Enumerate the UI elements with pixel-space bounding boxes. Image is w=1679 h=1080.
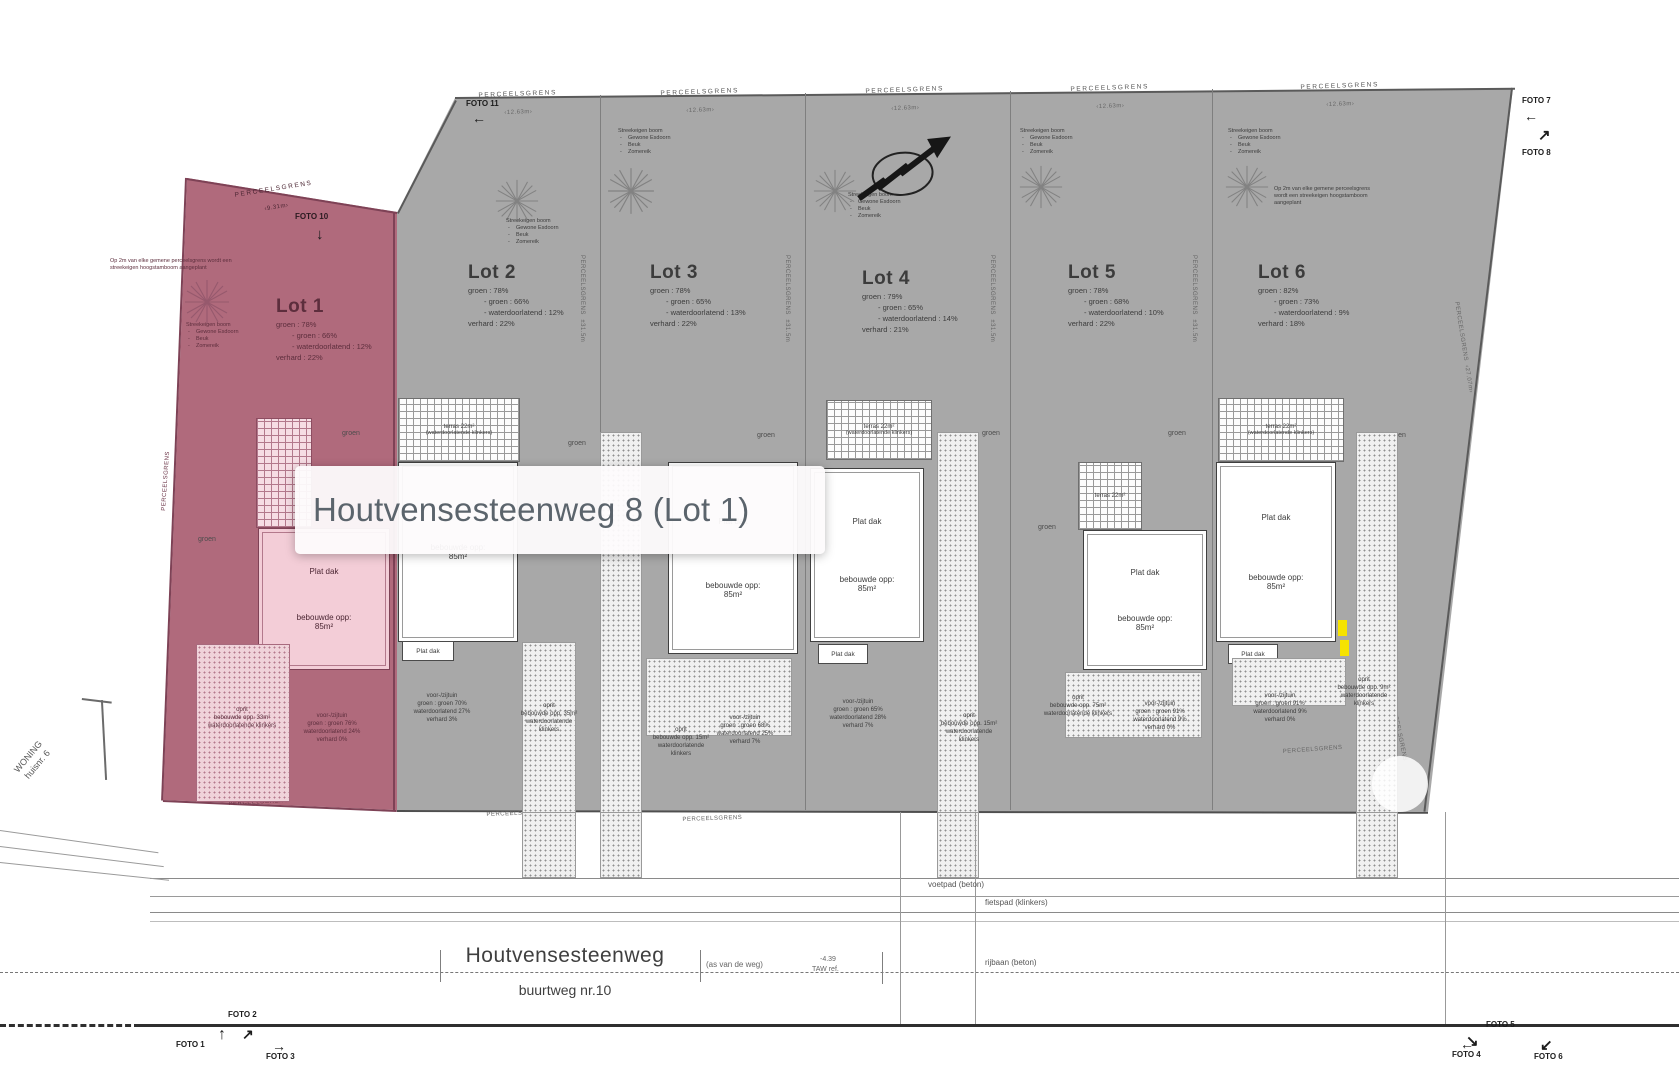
boundary-label-text: PERCEELSGRENS: [1300, 81, 1379, 91]
lot5-front-annotation: voor-/zijtuin groen : groen 91% waterdoo…: [1118, 700, 1202, 732]
stat-line: groen : 78%: [1068, 286, 1218, 297]
stat-line: - groen : 66%: [276, 331, 426, 342]
tree-legend-title: Streekeigen boom: [1020, 128, 1065, 134]
lot6-title: Lot 6: [1258, 262, 1408, 284]
roof-label: Plat dak: [1262, 513, 1291, 522]
annot-line: voor-/zijtuin: [286, 712, 378, 720]
green-label: groen: [568, 440, 586, 447]
stat-line: groen : 79%: [862, 292, 1012, 303]
annot-line: waterdoorlatende klinkers: [1042, 710, 1114, 718]
stat-line: verhard : 22%: [1068, 319, 1218, 330]
lot3-title: Lot 3: [650, 262, 800, 284]
annot-line: waterdoorlatende klinkers: [1330, 692, 1398, 708]
stat-line: groen : 78%: [468, 286, 618, 297]
road-section-fietspad: fietspad (klinkers): [985, 898, 1048, 907]
stat-line: groen : 78%: [650, 286, 800, 297]
lot2-info: Lot 2 groen : 78% - groen : 66% - waterd…: [468, 262, 618, 330]
roof-label: Plat dak: [1131, 568, 1160, 577]
down-left-arrow-icon: ↙: [1540, 1036, 1553, 1054]
lot3-info: Lot 3 groen : 78% - groen : 65% - waterd…: [650, 262, 800, 330]
tree-legend-item: Gewone Esdoorn: [186, 329, 278, 336]
neighbor-boundary-h: [82, 698, 112, 703]
stat-line: - groen : 65%: [650, 297, 800, 308]
annot-line: bebouwde opp. 33m²: [202, 714, 282, 722]
annot-line: groen : groen 76%: [286, 720, 378, 728]
lot2-oprit-annotation: oprit bebouwde opp. 35m² waterdoorlatend…: [520, 702, 578, 734]
annot-line: groen : groen 91%: [1118, 708, 1202, 716]
stat-line: - groen : 65%: [862, 303, 1012, 314]
neighbor-boundary-v: [101, 700, 107, 780]
annot-line: verhard 3%: [398, 716, 486, 724]
tree-legend-item: Gewone Esdoorn: [618, 135, 710, 142]
tree-legend-item: Beuk: [506, 232, 598, 239]
up-right-arrow-icon: ↗: [242, 1026, 254, 1043]
lot4-stats: groen : 79% - groen : 65% - waterdoorlat…: [862, 292, 1012, 336]
boundary-measure: ‹12.63m›: [686, 107, 714, 114]
annot-line: bebouwde opp. 15m²: [938, 720, 1000, 728]
boundary-measure: ‹12.63m›: [504, 109, 532, 116]
lot5-terrace: terras 22m²: [1078, 462, 1142, 530]
annot-line: waterdoorlatende klinkers: [938, 728, 1000, 744]
road-section-voetpad: voetpad (beton): [928, 880, 984, 889]
tree-legend-title: Streekeigen boom: [1228, 128, 1273, 134]
lot1-info: Lot 1 groen : 78% - groen : 66% - waterd…: [276, 296, 426, 364]
boundary-measure: ‹12.63m›: [1326, 101, 1354, 108]
lot6-terrace: terras 22m² (waterdoorlatende klinkers): [1218, 398, 1344, 462]
boundary-label-text: PERCEELSGRENS: [234, 180, 313, 199]
lot5-stats: groen : 78% - groen : 68% - waterdoorlat…: [1068, 286, 1218, 330]
stat-line: - waterdoorlatend : 13%: [650, 308, 800, 319]
north-arrow-icon: [846, 119, 974, 216]
terrace-label: terras 22m²: [1095, 493, 1126, 499]
neighbor-house-label: WONING huisnr. 6: [12, 739, 54, 783]
planting-note-lot6: Op 2m van elke gemene perceelsgrens word…: [1274, 186, 1370, 207]
annot-line: bebouwde opp. 35m²: [520, 710, 578, 718]
roof-label: Plat dak: [853, 517, 882, 526]
annot-line: verhard 0%: [1118, 724, 1202, 732]
down-right-arrow-icon: ↘: [1466, 1032, 1479, 1050]
driveway-stub: [522, 812, 576, 878]
lot4-flat-roof-box: Plat dak: [818, 644, 868, 664]
lot3-stats: groen : 78% - groen : 65% - waterdoorlat…: [650, 286, 800, 330]
annot-line: groen : groen 68%: [700, 722, 790, 730]
lot4-house: Plat dak bebouwde opp: 85m²: [810, 468, 924, 642]
map-tooltip[interactable]: Houtvensesteenweg 8 (Lot 1): [295, 466, 825, 554]
road-tick: [900, 812, 901, 1024]
tree-legend-item: Zomereik: [506, 239, 598, 246]
left-arrow-icon: ←: [472, 110, 486, 126]
boundary-label-text: PERCEELSGRENS: [1283, 745, 1343, 755]
tree-legend: Streekeigen boom Gewone Esdoorn Beuk Zom…: [618, 128, 710, 157]
lot3-front-annotation: voor-/zijtuin groen : groen 68% waterdoo…: [700, 714, 790, 746]
tooltip-text: Houtvensesteenweg 8 (Lot 1): [313, 491, 750, 529]
foto-1-marker: FOTO 1: [176, 1040, 205, 1049]
roof-label: Plat dak: [831, 651, 855, 658]
road-tick: [700, 950, 701, 982]
annot-line: oprit: [520, 702, 578, 710]
tree-legend-title: Streekeigen boom: [618, 128, 663, 134]
road-line: [150, 878, 1679, 879]
road-edge-dashed: [0, 1024, 140, 1027]
lot5-info: Lot 5 groen : 78% - groen : 68% - waterd…: [1068, 262, 1218, 330]
lot5-house: Plat dak bebouwde opp: 85m²: [1083, 530, 1207, 670]
green-label: groen: [1038, 524, 1056, 531]
road-line: [150, 912, 1679, 913]
stat-line: - groen : 68%: [1068, 297, 1218, 308]
lot6-stats: groen : 82% - groen : 73% - waterdoorlat…: [1258, 286, 1408, 330]
road-tick: [882, 952, 883, 984]
foto-10-marker: FOTO 10: [295, 212, 328, 221]
boundary-label-top-5: PERCEELSGRENS ‹12.63m›: [1300, 73, 1380, 112]
boundary-label-text: PERCEELSGRENS: [865, 85, 944, 95]
annot-line: oprit: [938, 712, 1000, 720]
lot4-front-annotation: voor-/zijtuin groen : groen 65% waterdoo…: [815, 698, 901, 730]
lot5-oprit-annotation: oprit bebouwde opp. 75m² waterdoorlatend…: [1042, 694, 1114, 718]
boundary-label-text: PERCEELSGRENS: [161, 451, 171, 511]
stat-line: verhard : 18%: [1258, 319, 1408, 330]
tree-legend-item: Beuk: [1020, 142, 1112, 149]
lot2-title: Lot 2: [468, 262, 618, 284]
lot6-house: Plat dak bebouwde opp: 85m²: [1216, 462, 1336, 642]
annot-line: oprit: [1042, 694, 1114, 702]
down-arrow-icon: ↓: [316, 226, 324, 243]
built-area-label: bebouwde opp: 85m²: [1240, 573, 1312, 591]
tree-icon: [1018, 164, 1064, 210]
tree-legend-item: Gewone Esdoorn: [1020, 135, 1112, 142]
stat-line: groen : 78%: [276, 320, 426, 331]
lot1-front-annotation: voor-/zijtuin groen : groen 76% waterdoo…: [286, 712, 378, 744]
annot-line: verhard 7%: [700, 738, 790, 746]
annot-line: oprit: [202, 706, 282, 714]
plan-white-spot: [1372, 756, 1428, 812]
street-axis-note: (as van de weg): [706, 960, 763, 969]
green-label: groen: [342, 430, 360, 437]
boundary-label-text: PERCEELSGRENS: [660, 87, 739, 97]
tree-legend: Streekeigen boom Gewone Esdoorn Beuk Zom…: [506, 218, 598, 247]
left-arrow-icon: ←: [1524, 108, 1538, 124]
lot2-stats: groen : 78% - groen : 66% - waterdoorlat…: [468, 286, 618, 330]
annot-line: verhard 0%: [1238, 716, 1322, 724]
lot5-title: Lot 5: [1068, 262, 1218, 284]
road-tick: [440, 950, 441, 982]
annot-line: waterdoorlatend 27%: [398, 708, 486, 716]
lot4-title: Lot 4: [862, 268, 1012, 290]
lot2-flat-roof-box: Plat dak: [402, 641, 454, 661]
tree-legend-title: Streekeigen boom: [506, 218, 551, 224]
tree-legend-item: Zomereik: [618, 149, 710, 156]
lot2-front-annotation: voor-/zijtuin groen : groen 70% waterdoo…: [398, 692, 486, 724]
stat-line: - groen : 66%: [468, 297, 618, 308]
road-tick: [975, 812, 976, 1024]
annot-line: waterdoorlatend 25%: [700, 730, 790, 738]
annot-line: bebouwde opp. 9m²: [1330, 684, 1398, 692]
boundary-measure: ‹12.63m›: [891, 105, 919, 112]
roof-label: Plat dak: [310, 567, 339, 576]
tree-legend-item: Beuk: [186, 336, 278, 343]
stat-line: - waterdoorlatend : 12%: [468, 308, 618, 319]
stat-line: groen : 82%: [1258, 286, 1408, 297]
boundary-label-bottom-3: PERCEELSGRENS: [682, 806, 742, 826]
stat-line: - waterdoorlatend : 9%: [1258, 308, 1408, 319]
tree-legend-item: Zomereik: [1228, 149, 1320, 156]
foto-8-marker: FOTO 8: [1522, 148, 1551, 157]
boundary-label-text: PERCEELSGRENS: [682, 815, 742, 823]
foto-3-marker: FOTO 3: [266, 1052, 295, 1061]
built-area-label: bebouwde opp: 85m²: [288, 613, 360, 631]
tree-legend-item: Beuk: [1228, 142, 1320, 149]
boundary-label-top-4: PERCEELSGRENS ‹12.63m›: [1070, 75, 1150, 114]
stat-line: - waterdoorlatend : 14%: [862, 314, 1012, 325]
road-tick: [1445, 812, 1446, 1024]
lot1-oprit-annotation: oprit bebouwde opp. 33m² waterdoorlatend…: [202, 706, 282, 730]
built-area-label: bebouwde opp: 85m²: [697, 581, 769, 599]
green-label: groen: [198, 536, 216, 543]
up-right-arrow-icon: ↗: [1538, 126, 1551, 144]
annot-line: groen : groen 70%: [398, 700, 486, 708]
terrace-sublabel: (waterdoorlatende klinkers): [426, 430, 492, 436]
tree-legend-item: Gewone Esdoorn: [506, 225, 598, 232]
green-label: groen: [757, 432, 775, 439]
annot-line: waterdoorlatende klinkers: [202, 722, 282, 730]
yellow-highlight-marker: [1340, 640, 1349, 656]
lot-divider-4-5: [1010, 91, 1011, 810]
lot1-title: Lot 1: [276, 296, 426, 318]
street-subtitle: buurtweg nr.10: [470, 982, 660, 998]
tree-icon: [183, 278, 231, 326]
road-edge-thick: [140, 1024, 1679, 1027]
annot-line: waterdoorlatend 9%: [1118, 716, 1202, 724]
lot6-front-annotation: voor-/zijtuin groen : groen 91% waterdoo…: [1238, 692, 1322, 724]
stat-line: verhard : 22%: [276, 353, 426, 364]
lot6-oprit-annotation: oprit bebouwde opp. 9m² waterdoorlatende…: [1330, 676, 1398, 708]
foto-11-marker: FOTO 11: [466, 99, 499, 108]
annot-line: waterdoorlatend 9%: [1238, 708, 1322, 716]
stat-line: verhard : 22%: [468, 319, 618, 330]
annot-line: verhard 7%: [815, 722, 901, 730]
annot-line: waterdoorlatende klinkers: [520, 718, 578, 734]
street-level: -4.39: [820, 956, 836, 963]
road-curve: [0, 862, 169, 881]
boundary-measure: ‹27.07m›: [1463, 365, 1473, 394]
road-line: [150, 921, 1679, 922]
tree-legend: Streekeigen boom Gewone Esdoorn Beuk Zom…: [1020, 128, 1112, 157]
tree-legend-item: Gewone Esdoorn: [1228, 135, 1320, 142]
lot4-info: Lot 4 groen : 79% - groen : 65% - waterd…: [862, 268, 1012, 336]
tree-legend-item: Zomereik: [186, 343, 278, 350]
green-label: groen: [1168, 430, 1186, 437]
stat-line: - groen : 73%: [1258, 297, 1408, 308]
lot-divider-5-6: [1212, 89, 1213, 810]
annot-line: voor-/zijtuin: [700, 714, 790, 722]
stat-line: verhard : 21%: [862, 325, 1012, 336]
lot2-terrace: terras 22m² (waterdoorlatende klinkers): [398, 398, 520, 462]
foto-7-marker: FOTO 7: [1522, 96, 1551, 105]
roof-label: Plat dak: [1241, 651, 1265, 658]
tree-icon: [1224, 164, 1270, 210]
annot-line: voor-/zijtuin: [398, 692, 486, 700]
boundary-measure: ‹9.31m›: [264, 203, 289, 213]
up-arrow-icon: ↑: [218, 1026, 226, 1044]
driveway-stub: [937, 812, 979, 878]
annot-line: bebouwde opp. 75m²: [1042, 702, 1114, 710]
roof-label: Plat dak: [416, 648, 440, 655]
annot-line: oprit: [1330, 676, 1398, 684]
street-level-ref: TAW ref.: [812, 966, 839, 973]
tree-legend-title: Streekeigen boom: [186, 322, 231, 328]
annot-line: voor-/zijtuin: [1238, 692, 1322, 700]
road-section-rijbaan: rijbaan (beton): [985, 958, 1037, 967]
driveway-stub: [600, 812, 642, 878]
tree-legend: Streekeigen boom Gewone Esdoorn Beuk Zom…: [186, 322, 278, 351]
tree-icon: [606, 166, 656, 216]
built-area-label: bebouwde opp: 85m²: [1109, 614, 1181, 632]
lot1-stats: groen : 78% - groen : 66% - waterdoorlat…: [276, 320, 426, 364]
tree-legend-item: Zomereik: [1020, 149, 1112, 156]
yellow-highlight-marker: [1338, 620, 1347, 636]
tree-legend-item: Beuk: [618, 142, 710, 149]
annot-line: groen : groen 65%: [815, 706, 901, 714]
foto-4-marker: FOTO 4: [1452, 1050, 1481, 1059]
tree-legend: Streekeigen boom Gewone Esdoorn Beuk Zom…: [1228, 128, 1320, 157]
driveway-stub: [1356, 812, 1398, 878]
annot-line: voor-/zijtuin: [1118, 700, 1202, 708]
stat-line: verhard : 22%: [650, 319, 800, 330]
boundary-measure: ‹12.63m›: [1096, 103, 1124, 110]
lot4-oprit-annotation: oprit bebouwde opp. 15m² waterdoorlatend…: [938, 712, 1000, 744]
lot6-info: Lot 6 groen : 82% - groen : 73% - waterd…: [1258, 262, 1408, 330]
annot-line: groen : groen 91%: [1238, 700, 1322, 708]
terrace-sublabel: (waterdoorlatende klinkers): [846, 430, 912, 436]
annot-line: verhard 0%: [286, 736, 378, 744]
planting-note-lot1: Op 2m van elke gemene perceelsgrens word…: [110, 258, 248, 272]
street-name: Houtvensesteenweg: [445, 944, 685, 968]
terrace-sublabel: (waterdoorlatende klinkers): [1248, 430, 1314, 436]
boundary-label-text: PERCEELSGRENS: [1070, 83, 1149, 93]
green-label: groen: [982, 430, 1000, 437]
lot-divider-3-4: [805, 93, 806, 810]
boundary-label-text: PERCEELSGRENS: [478, 89, 557, 99]
boundary-label-lot1-left: PERCEELSGRENS: [152, 450, 174, 511]
lot4-terrace: terras 22m² (waterdoorlatende klinkers): [826, 400, 932, 460]
stat-line: - waterdoorlatend : 12%: [276, 342, 426, 353]
site-plan-canvas: PERCEELSGRENS ‹12.63m› PERCEELSGRENS ‹12…: [0, 0, 1679, 1080]
stat-line: - waterdoorlatend : 10%: [1068, 308, 1218, 319]
annot-line: waterdoorlatend 24%: [286, 728, 378, 736]
annot-line: voor-/zijtuin: [815, 698, 901, 706]
built-area-label: bebouwde opp: 85m²: [831, 575, 903, 593]
annot-line: waterdoorlatend 28%: [815, 714, 901, 722]
foto-5-marker: FOTO 5: [1486, 1020, 1515, 1029]
boundary-label-top-3: PERCEELSGRENS ‹12.63m›: [865, 77, 945, 116]
road-centerline: [0, 972, 1679, 973]
boundary-label-top-2: PERCEELSGRENS ‹12.63m›: [660, 79, 740, 118]
road-line: [150, 896, 1679, 897]
foto-2-marker: FOTO 2: [228, 1010, 257, 1019]
